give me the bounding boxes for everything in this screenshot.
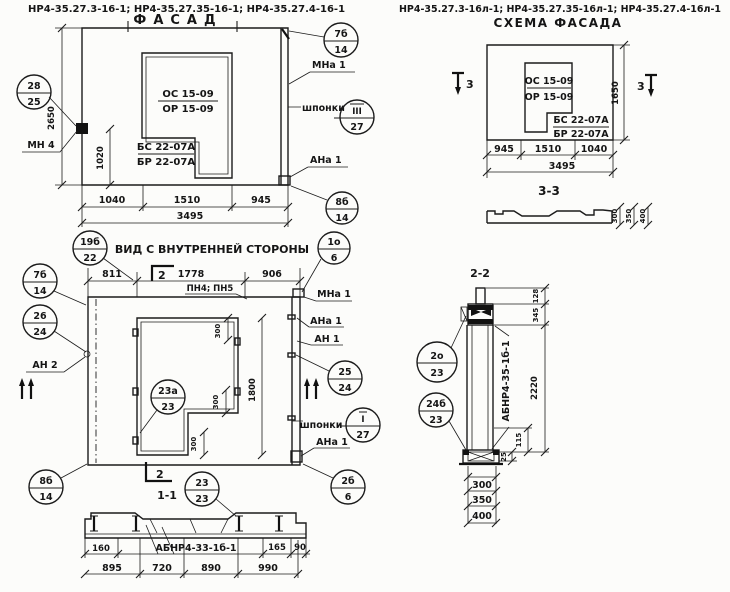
opening-code-top: ОС 15-09 [525, 76, 574, 87]
label-an1: АН 1 [314, 334, 339, 345]
balloon-bottom-value: 6 [345, 492, 352, 503]
dim-total: 3495 [549, 161, 575, 172]
balloon-26-24: 26 24 [23, 305, 57, 339]
balloon-top-value: 19б [80, 237, 100, 248]
dim-1800: 1800 [248, 378, 258, 402]
schema-drawing: ОС 15-09 ОР 15-09 БС 22-07А БР 22-07А 3 … [452, 41, 657, 198]
label-ana1: АНа 1 [310, 316, 342, 327]
dim-label: 811 [102, 269, 122, 280]
dim-label: 1510 [174, 195, 201, 206]
dim-label: 906 [262, 269, 282, 280]
dim-165: 165 [268, 543, 286, 553]
label-mn4: МН 4 [27, 140, 55, 151]
schema-title: СХЕМА ФАСАДА [494, 16, 623, 30]
balloon-1o-6: 1о 6 [318, 232, 350, 264]
balloon-top-value: III [352, 107, 362, 117]
dim-345: 345 [532, 308, 540, 323]
balloon-8b-14: 8б 14 [29, 470, 63, 504]
edge-loop-detail [84, 351, 90, 357]
section-mark-3: 3 [637, 80, 645, 93]
balloon-top-value: 28 [27, 81, 41, 92]
dim-label: 895 [102, 563, 122, 574]
beam-code-label: АБНР4-33-1б-1 [155, 543, 236, 554]
dim-115: 115 [515, 433, 523, 448]
balloon-24b-23: 24б 23 [419, 393, 453, 427]
dim-label: 1510 [535, 144, 562, 155]
label-mna1: МНа 1 [312, 60, 346, 71]
balloon-bottom-value: 14 [334, 45, 348, 56]
balloon-19b-22: 19б 22 [73, 231, 107, 265]
balloon-top-value: 24б [426, 399, 446, 410]
dim-2220: 2220 [530, 376, 540, 400]
balloon-bottom-value: 14 [335, 213, 349, 224]
facade-title: ФАСАД [133, 13, 222, 28]
dim-label: 990 [258, 563, 278, 574]
section-2-2-title: 2-2 [470, 267, 490, 280]
balloon-top-value: 8б [335, 197, 349, 208]
balloon-top-value: 23а [158, 386, 178, 397]
label-mna1: МНа 1 [317, 289, 351, 300]
balloon-top-value: 25 [338, 367, 351, 378]
facade-drawing: ОС 15-09 ОР 15-09 БС 22-07А БР 22-07А 26… [17, 21, 374, 227]
dim-label: 1040 [581, 144, 608, 155]
label-shponki: шпонки [302, 103, 345, 114]
block-code-top: БС 22-07А [137, 142, 195, 153]
beam-code-label: АБНР4-35-1б-1 [501, 340, 512, 421]
dim-300: 300 [212, 395, 220, 410]
dim-160: 160 [92, 544, 110, 554]
dim-label: 945 [251, 195, 271, 206]
inner-view-drawing: ВИД С ВНУТРЕННЕЙ СТОРОНЫ 811 1778 906 2 … [19, 231, 380, 516]
balloon-top-value: 23 [195, 478, 208, 489]
inner-view-title: ВИД С ВНУТРЕННЕЙ СТОРОНЫ [115, 243, 309, 256]
dim-label: 300 [472, 480, 492, 491]
drawing-canvas: НР4-35.27.3-16-1; НР4-35.27.35-16-1; НР4… [0, 0, 730, 592]
right-panel-codes: НР4-35.27.3-16л-1; НР4-35.27.35-16л-1; Н… [399, 4, 721, 15]
label-pn4-pn5: ПН4; ПН5 [187, 284, 234, 294]
opening-code-bottom: ОР 15-09 [525, 92, 574, 103]
section-mark-3: 3 [466, 78, 474, 91]
balloon-23a-23: 23а 23 [151, 380, 185, 414]
balloon-bottom-value: 24 [33, 327, 47, 338]
dim-label: 720 [152, 563, 172, 574]
balloon-bottom-value: 27 [356, 430, 369, 441]
balloon-7b-14: 7б 14 [23, 264, 57, 298]
label-shponki: шпонки [300, 420, 343, 431]
balloon-bottom-value: 6 [331, 253, 338, 264]
balloon-top-value: I [361, 415, 364, 425]
dim-label: 400 [472, 511, 492, 522]
section-mark-2: 2 [158, 269, 166, 282]
dim-label: 1040 [99, 195, 126, 206]
opening-code-top: ОС 15-09 [162, 89, 213, 100]
dim-label: 945 [494, 144, 514, 155]
corner-anchor-detail [293, 289, 304, 297]
dim-total: 3495 [177, 211, 203, 222]
dim-label: 300 [611, 209, 619, 224]
balloon-top-value: 2о [430, 351, 444, 362]
section-3-3-drawing: 300 350 400 [487, 203, 652, 229]
balloon-top-value: 8б [39, 476, 53, 487]
block-code-top: БС 22-07А [553, 115, 609, 126]
balloon-top-value: 7б [33, 270, 47, 281]
balloon-bottom-value: 23 [430, 368, 443, 379]
balloon-23-23: 23 23 [185, 472, 219, 506]
sheet-titles: НР4-35.27.3-16-1; НР4-35.27.35-16-1; НР4… [28, 4, 721, 30]
balloon-bottom-value: 14 [33, 286, 47, 297]
cap-detail [476, 288, 485, 304]
section-mark-2: 2 [156, 468, 164, 481]
dim-label: 350 [625, 209, 633, 224]
section-2-2-drawing: 2-2 128 345 2220 115 25 АБНР4-35-1б-1 [417, 267, 549, 527]
label-an2: АН 2 [32, 360, 57, 371]
label-ana1: АНа 1 [310, 155, 342, 166]
balloon-bottom-value: 14 [39, 492, 53, 503]
mn4-anchor-detail [76, 123, 88, 134]
balloon-bottom-value: 24 [338, 383, 352, 394]
dim-label: 350 [472, 495, 492, 506]
block-code-bottom: БР 22-07А [137, 157, 195, 168]
balloon-bottom-value: 27 [350, 122, 363, 133]
balloon-top-value: 26 [33, 311, 47, 322]
balloon-bottom-value: 23 [161, 402, 174, 413]
blueprint-sheet: НР4-35.27.3-16-1; НР4-35.27.35-16-1; НР4… [0, 0, 730, 592]
balloon-8b-14: 8б 14 [326, 192, 358, 224]
dim-90: 90 [294, 543, 306, 553]
dim-height: 1650 [611, 81, 621, 105]
balloon-top-value: 2б [341, 476, 355, 487]
balloon-top-value: 1о [327, 237, 341, 248]
balloon-2o-23: 2о 23 [417, 342, 457, 382]
section-3-3-title: 3-3 [538, 184, 560, 198]
dim-1020: 1020 [96, 146, 106, 170]
balloon-bottom-value: 25 [27, 97, 40, 108]
opening-code-bottom: ОР 15-09 [162, 104, 213, 115]
balloon-bottom-value: 22 [83, 253, 96, 264]
dim-label: 400 [639, 209, 647, 224]
dim-128: 128 [532, 289, 540, 304]
balloon-2b-6: 2б 6 [331, 470, 365, 504]
dim-label: 890 [201, 563, 221, 574]
balloon-bottom-value: 23 [195, 494, 208, 505]
dim-300: 300 [190, 437, 198, 452]
dim-25: 25 [500, 452, 508, 462]
dim-label: 1778 [178, 269, 205, 280]
section-1-1-title: 1-1 [157, 489, 177, 502]
dim-height: 2650 [47, 106, 57, 130]
balloon-25-24: 25 24 [328, 361, 362, 395]
block-code-bottom: БР 22-07А [553, 129, 609, 140]
balloon-bottom-value: 23 [429, 415, 442, 426]
label-ana1: АНа 1 [316, 437, 348, 448]
balloon-7b-14: 7б 14 [324, 23, 358, 57]
balloon-28-25: 28 25 [17, 75, 51, 109]
dim-300: 300 [214, 324, 222, 339]
balloon-top-value: 7б [334, 29, 348, 40]
section-1-1-drawing: 160 165 90 АБНР4-33-1б-1 895 720 890 990 [81, 513, 310, 578]
